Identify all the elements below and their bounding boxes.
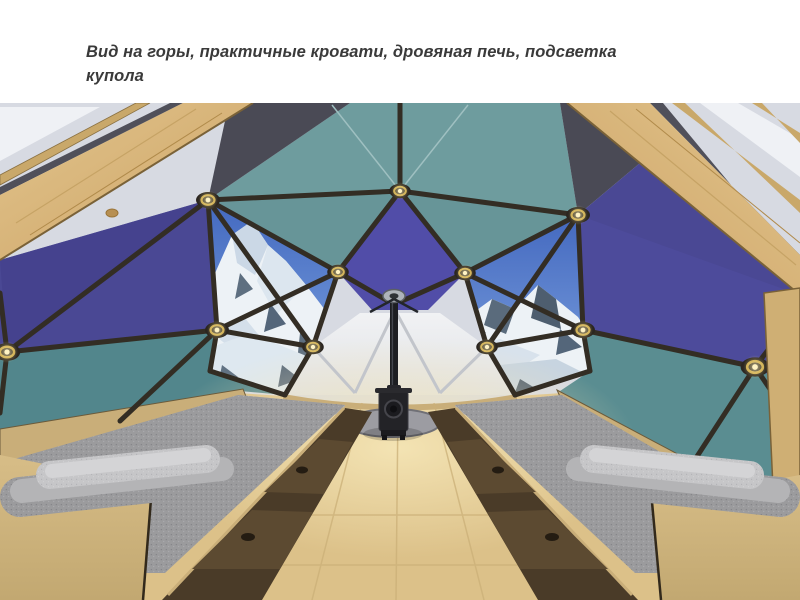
stove-top-plate — [375, 388, 412, 393]
caption-line-1: Вид на горы, практичные кровати, дровяна… — [86, 40, 760, 64]
dome-interior-render — [0, 103, 800, 600]
drawer-handle-hole — [545, 533, 559, 541]
wood-knot — [106, 209, 118, 217]
slide-caption: Вид на горы, практичные кровати, дровяна… — [0, 0, 800, 103]
drawer-handle-hole — [241, 533, 255, 541]
stove-pipe — [390, 293, 398, 393]
drawer-handle-hole — [492, 467, 504, 474]
drawer-handle-hole — [296, 467, 308, 474]
presentation-slide: Вид на горы, практичные кровати, дровяна… — [0, 0, 800, 600]
caption-line-2: купола — [86, 64, 760, 88]
